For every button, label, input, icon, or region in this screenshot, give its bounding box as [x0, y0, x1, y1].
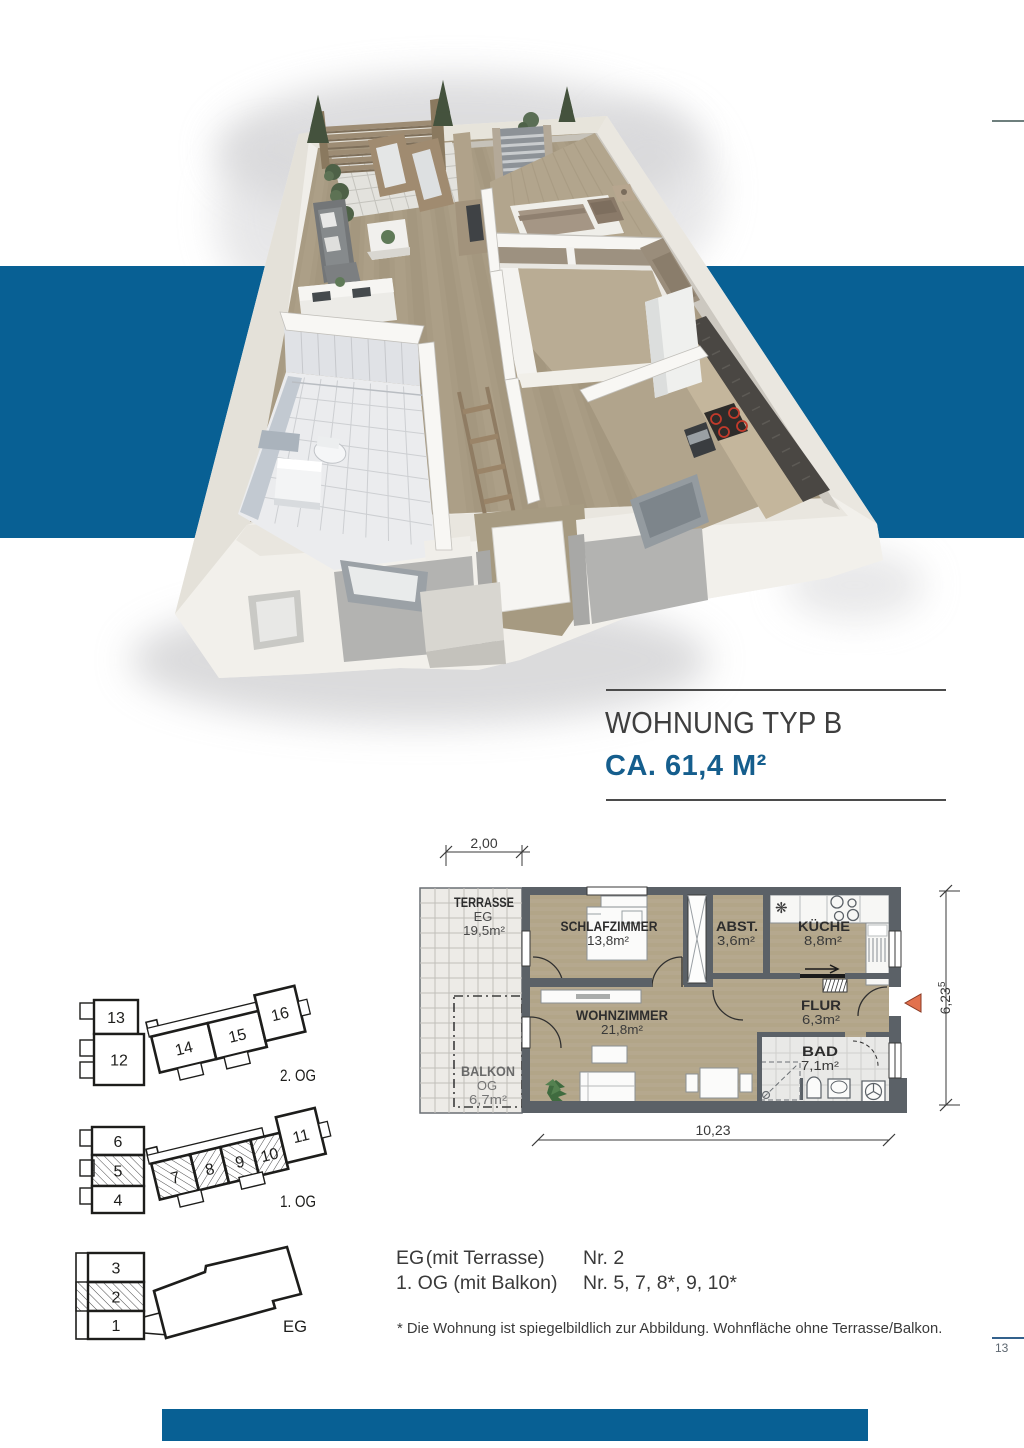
svg-text:6: 6 — [114, 1134, 123, 1151]
svg-text:13: 13 — [107, 1010, 125, 1027]
svg-text:1. OG: 1. OG — [280, 1192, 316, 1211]
svg-text:5: 5 — [114, 1164, 123, 1181]
svg-text:2: 2 — [112, 1290, 121, 1307]
svg-text:3: 3 — [112, 1261, 121, 1278]
svg-text:EG: EG — [283, 1317, 307, 1336]
svg-text:1: 1 — [112, 1318, 121, 1335]
svg-text:4: 4 — [114, 1193, 123, 1210]
svg-text:12: 12 — [110, 1053, 128, 1070]
svg-text:2. OG: 2. OG — [280, 1066, 316, 1085]
